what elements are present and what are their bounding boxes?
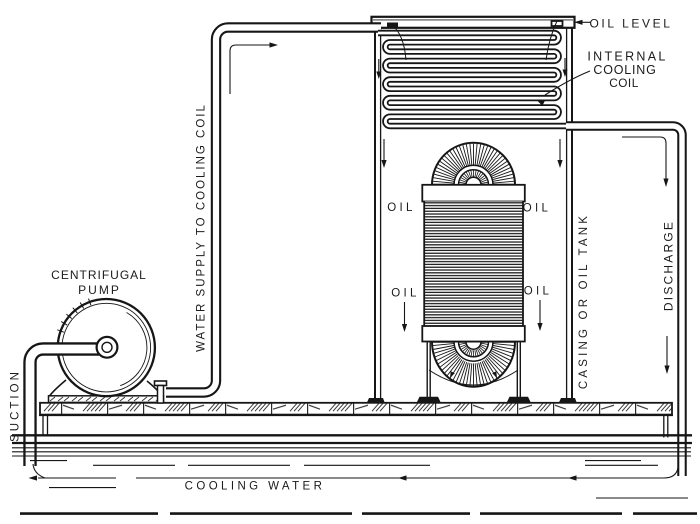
svg-text:CASING OR OIL TANK: CASING OR OIL TANK: [578, 213, 590, 389]
svg-text:COIL: COIL: [609, 76, 639, 90]
svg-text:SUCTION: SUCTION: [10, 369, 22, 442]
svg-text:COOLING: COOLING: [593, 63, 656, 77]
svg-text:COOLING WATER: COOLING WATER: [185, 481, 326, 493]
svg-text:OIL: OIL: [387, 202, 415, 214]
svg-text:PUMP: PUMP: [78, 283, 121, 297]
svg-text:WATER SUPPLY TO COOLING COIL: WATER SUPPLY TO COOLING COIL: [196, 103, 208, 352]
svg-text:OIL LEVEL: OIL LEVEL: [590, 16, 673, 30]
svg-text:DISCHARGE: DISCHARGE: [662, 220, 676, 311]
svg-text:OIL: OIL: [391, 288, 419, 300]
svg-text:OIL: OIL: [524, 286, 552, 298]
svg-text:OIL: OIL: [523, 203, 551, 215]
svg-text:CENTRIFUGAL: CENTRIFUGAL: [51, 268, 147, 282]
svg-text:INTERNAL: INTERNAL: [587, 50, 667, 64]
